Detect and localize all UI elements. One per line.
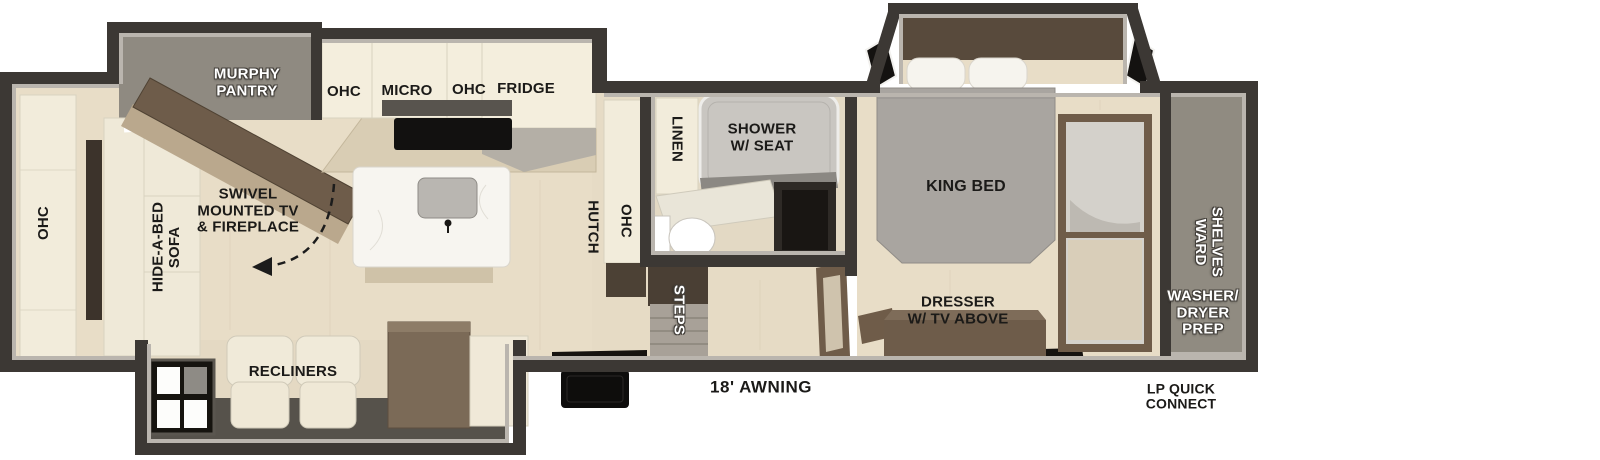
label-hide-a-bed-sofa: HIDE-A-BED SOFA [151,202,184,292]
king-bed [877,88,1055,263]
bedroom-window [1062,118,1148,348]
label-washer-dryer-prep: WASHER/ DRYER PREP [1167,288,1238,338]
label-ohc-hutch: OHC [617,204,634,238]
label-linen: LINEN [668,116,685,162]
entry-step-box [561,370,629,408]
recliner-right [296,336,360,428]
label-shelves-ward: SHELVES WARD [1192,207,1225,277]
label-ohc-kitchen-right: OHC [452,82,486,99]
headboard [899,14,1127,60]
pillow-left [907,58,965,90]
kitchen-island [353,167,510,283]
label-lp-quick-connect: LP QUICK CONNECT [1146,382,1217,413]
recliner-left [227,336,293,428]
floorplan-image: MURPHY PANTRY OHC MICRO OHC FRIDGE SWIVE… [0,0,1600,460]
sink [418,178,477,218]
slide-window [150,360,214,434]
label-shower: SHOWER W/ SEAT [728,122,797,155]
range-hood [382,100,512,116]
label-recliners: RECLINERS [249,364,337,381]
label-fridge: FRIDGE [497,81,555,98]
label-dresser: DRESSER W/ TV ABOVE [908,295,1009,328]
pillow-right [969,58,1027,90]
side-table [388,322,470,428]
label-ohc-rear: OHC [36,206,53,240]
label-awning: 18' AWNING [710,379,812,398]
hutch-cabinet [604,100,646,263]
hutch-base [606,263,646,297]
sofa-back-panel [86,140,102,320]
label-ohc-kitchen-left: OHC [327,84,361,101]
label-swivel-tv: SWIVEL MOUNTED TV & FIREPLACE [197,186,299,236]
label-king-bed: KING BED [926,178,1006,196]
vanity-cabinet [774,182,836,258]
cooktop [394,118,512,150]
bedroom-door [816,262,850,362]
label-micro: MICRO [382,83,433,100]
label-murphy-pantry: MURPHY PANTRY [214,67,280,100]
label-hutch: HUTCH [584,200,601,254]
label-steps: STEPS [670,285,687,335]
